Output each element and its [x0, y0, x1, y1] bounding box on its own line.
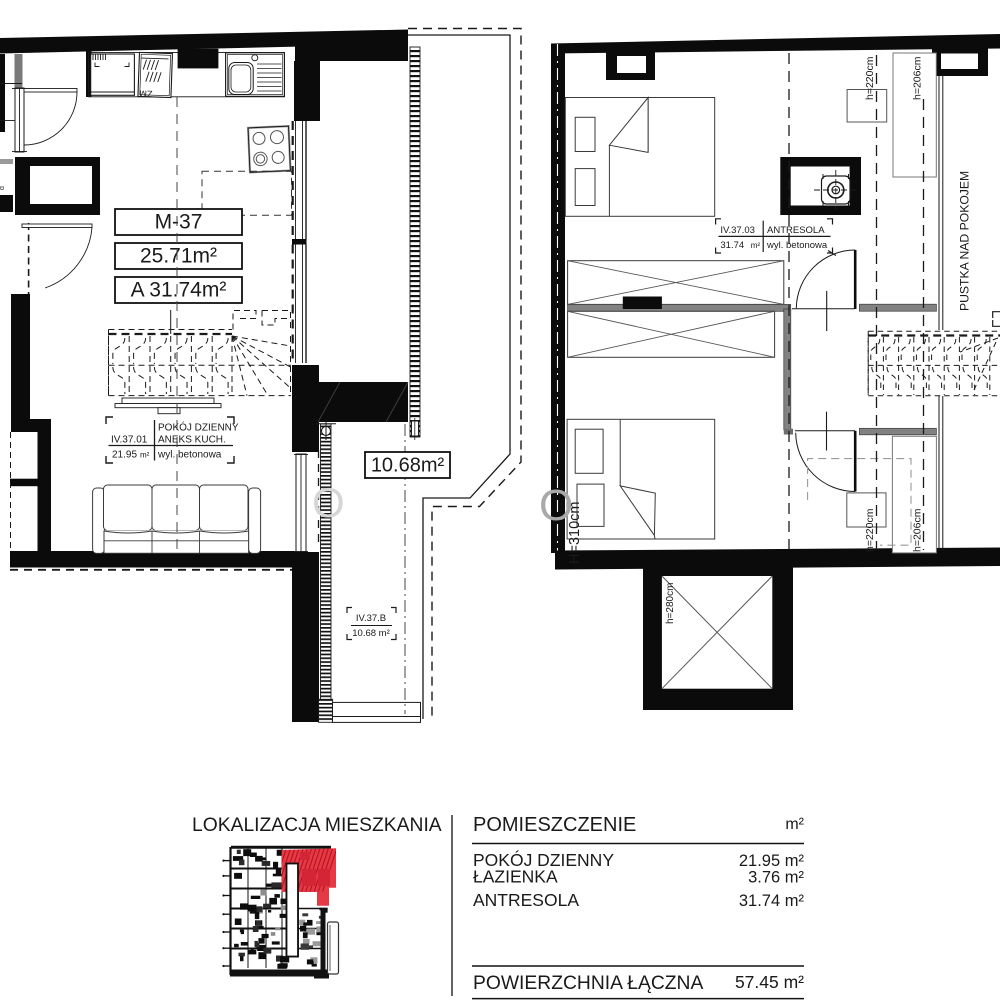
svg-text:IV.37.01: IV.37.01 — [111, 435, 148, 446]
svg-text:ZM: ZM — [139, 88, 152, 98]
svg-text:POKÓJ DZIENNY: POKÓJ DZIENNY — [158, 421, 239, 434]
svg-text:POMIESZCZENIE: POMIESZCZENIE — [473, 814, 636, 836]
svg-text:h=220cm: h=220cm — [864, 508, 876, 552]
svg-text:m²: m² — [140, 451, 150, 460]
svg-text:O: O — [312, 479, 345, 526]
svg-text:57.45 m²: 57.45 m² — [735, 972, 804, 992]
svg-text:wyl. betonowa: wyl. betonowa — [766, 240, 828, 251]
svg-text:IV.37.B: IV.37.B — [356, 613, 386, 624]
svg-text:A 31.74m²: A 31.74m² — [131, 279, 227, 302]
svg-text:h=206cm: h=206cm — [912, 56, 924, 100]
svg-text:d: d — [0, 186, 6, 190]
svg-text:h=220cm: h=220cm — [864, 56, 876, 100]
svg-text:wyl. betonowa: wyl. betonowa — [157, 450, 222, 461]
svg-text:31.74 m²: 31.74 m² — [739, 892, 805, 910]
svg-text:ŁAZIENKA: ŁAZIENKA — [473, 867, 558, 887]
svg-text:ANTRESOLA: ANTRESOLA — [767, 225, 825, 236]
svg-text:ANEKS KUCH.: ANEKS KUCH. — [158, 435, 226, 446]
svg-text:25.71m²: 25.71m² — [140, 245, 217, 268]
svg-text:21.95: 21.95 — [112, 450, 137, 461]
svg-text:h=206cm: h=206cm — [912, 508, 924, 552]
svg-text:LOKALIZACJA MIESZKANIA: LOKALIZACJA MIESZKANIA — [192, 815, 442, 836]
svg-text:3.76 m²: 3.76 m² — [748, 869, 804, 887]
svg-text:m²: m² — [785, 816, 804, 833]
svg-text:31.74: 31.74 — [720, 240, 744, 251]
svg-text:POWIERZCHNIA ŁĄCZNA: POWIERZCHNIA ŁĄCZNA — [473, 973, 703, 994]
svg-text:PUSTKA NAD POKOJEM: PUSTKA NAD POKOJEM — [958, 171, 972, 311]
svg-text:10.68 m²: 10.68 m² — [352, 628, 390, 639]
svg-text:M-37: M-37 — [155, 211, 203, 234]
svg-text:21.95 m²: 21.95 m² — [739, 852, 805, 870]
svg-text:O: O — [539, 481, 573, 530]
svg-text:ANTRESOLA: ANTRESOLA — [473, 890, 579, 910]
svg-text:10.68m²: 10.68m² — [371, 455, 445, 477]
svg-text:IV.37.03: IV.37.03 — [720, 225, 755, 236]
svg-text:m²: m² — [751, 241, 761, 250]
svg-text:h=280cm: h=280cm — [665, 583, 676, 624]
